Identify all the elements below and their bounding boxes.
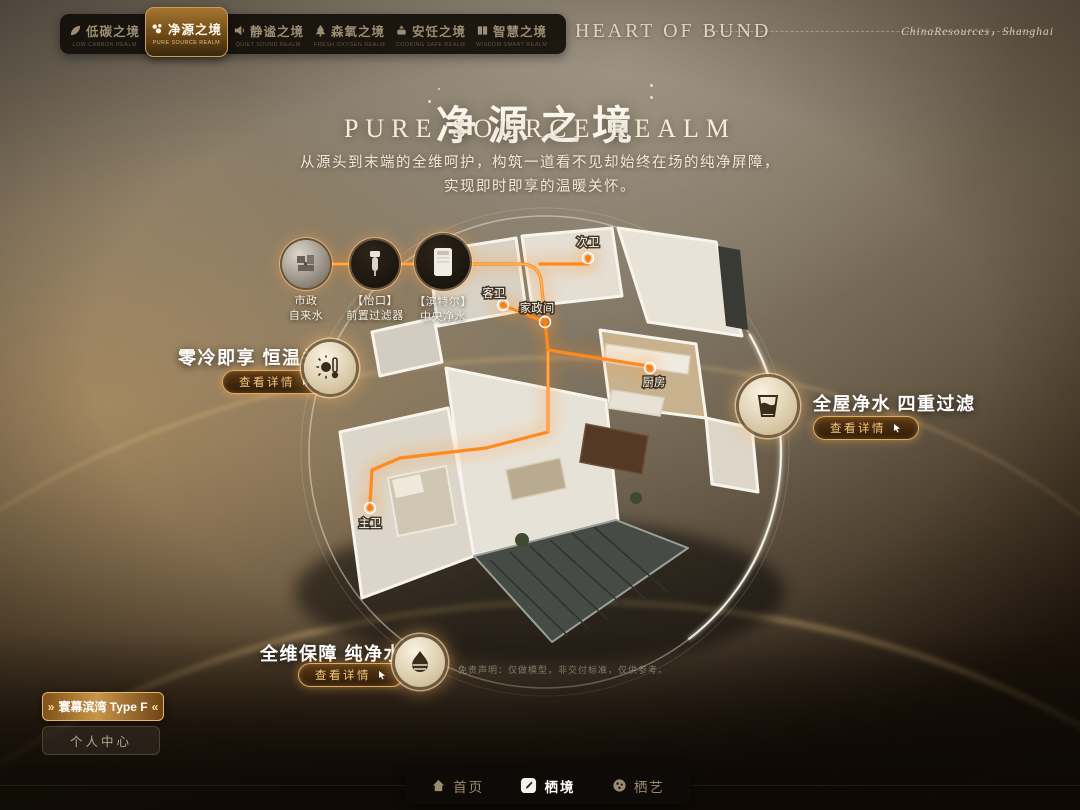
- personal-center-button[interactable]: 个人中心: [42, 726, 160, 755]
- page-subtitle: PURE SOURCE REALM: [0, 114, 1080, 144]
- tab-sublabel: LOW CARBON REALM: [72, 42, 136, 47]
- app-screen: 次卫 客卫 家政间 厨房 主卫 低碳之境 LOW CARBON REALM 净源…: [0, 0, 1080, 810]
- tab-safe-cooking[interactable]: 安饪之境 COOKING SAFE REALM: [390, 14, 471, 54]
- tab-forest-oxygen[interactable]: 森氧之境 FRESH OXYGEN REALM: [309, 14, 390, 54]
- central-purifier-icon: [416, 235, 470, 289]
- callout-right-title: 全屋净水 四重过滤: [813, 390, 976, 416]
- tab-label: 安饪之境: [412, 21, 466, 40]
- cursor-icon: [892, 423, 902, 433]
- water-filter-hotspot-icon[interactable]: [739, 377, 797, 435]
- tab-label: 低碳之境: [86, 21, 140, 40]
- chain-label-line1: 【滨特尔】: [414, 296, 472, 308]
- chain-label-line1: 【怡口】: [352, 295, 398, 307]
- tab-sublabel: COOKING SAFE REALM: [396, 42, 465, 47]
- top-navigation: 低碳之境 LOW CARBON REALM 净源之境 PURE SOURCE R…: [60, 14, 566, 54]
- tab-sublabel: QUIET SOUND REALM: [236, 42, 301, 47]
- tab-label: 静谧之境: [250, 21, 304, 40]
- leaf-icon: [69, 24, 82, 37]
- tab-pure-source[interactable]: 净源之境 PURE SOURCE REALM: [145, 7, 228, 57]
- title-deco-dot: [650, 96, 653, 99]
- page-description-line1: 从源头到末端的全维呵护，构筑一道看不见却始终在场的纯净屏障，: [0, 151, 1080, 172]
- personal-center-label: 个人中心: [70, 731, 132, 750]
- pot-icon: [395, 24, 408, 37]
- tab-sublabel: FRESH OXYGEN REALM: [314, 42, 385, 47]
- tab-low-carbon[interactable]: 低碳之境 LOW CARBON REALM: [64, 14, 145, 54]
- bottomnav-label: 首页: [453, 776, 484, 796]
- chain-label-line2: 中央净水: [420, 311, 466, 323]
- prefilter-icon: [351, 240, 399, 288]
- title-deco-dot: [650, 84, 653, 87]
- chevron-right-icon: »: [48, 700, 55, 714]
- book-icon: [476, 24, 489, 37]
- tab-label: 智慧之境: [493, 21, 547, 40]
- detail-button-label: 查看详情: [315, 667, 371, 683]
- project-type-button[interactable]: » 寰幕滨湾 Type F «: [42, 692, 164, 721]
- brand-location: ChinaResources，Shanghai: [901, 23, 1054, 39]
- project-type-label: 寰幕滨湾 Type F: [58, 698, 147, 715]
- title-deco-dot: [428, 100, 431, 103]
- page-description-line2: 实现即时即享的温暖关怀。: [0, 175, 1080, 196]
- bottomnav-label: 栖境: [544, 776, 575, 796]
- callout-bottom-detail-button[interactable]: 查看详情: [298, 663, 404, 687]
- tab-sublabel: PURE SOURCE REALM: [153, 40, 220, 45]
- tab-sublabel: WISDOM SMART REALM: [476, 42, 547, 47]
- detail-button-label: 查看详情: [830, 420, 886, 436]
- bottomnav-art[interactable]: 栖艺: [612, 776, 665, 796]
- palette-icon: [612, 778, 627, 793]
- bottomnav-label: 栖艺: [634, 776, 665, 796]
- chain-label-line2: 自来水: [289, 310, 324, 322]
- water-quality-hotspot-icon[interactable]: [395, 637, 445, 687]
- tab-quiet[interactable]: 静谧之境 QUIET SOUND REALM: [228, 14, 309, 54]
- chevron-left-icon: «: [152, 700, 159, 714]
- compass-pen-icon: [520, 777, 537, 794]
- home-icon: [431, 778, 446, 793]
- callout-right-detail-button[interactable]: 查看详情: [813, 416, 919, 440]
- speaker-icon: [233, 24, 246, 37]
- title-deco-dot: [438, 88, 440, 90]
- tab-label: 净源之境: [168, 19, 222, 38]
- disclaimer-text: 免责声明：仅做模型，非交付标准，仅供参考。: [458, 663, 668, 676]
- bottomnav-habitat[interactable]: 栖境: [520, 776, 575, 796]
- bottom-navigation: 首页 栖境 栖艺: [405, 767, 691, 804]
- bottomnav-home[interactable]: 首页: [431, 776, 484, 796]
- water-drops-icon: [151, 22, 164, 35]
- municipal-water-icon: [282, 240, 330, 288]
- chain-item-central-purifier: 【滨特尔】中央净水: [395, 235, 491, 326]
- tree-icon: [314, 24, 327, 37]
- tab-label: 森氧之境: [331, 21, 385, 40]
- cursor-icon: [377, 670, 387, 680]
- tab-wisdom[interactable]: 智慧之境 WISDOM SMART REALM: [471, 14, 552, 54]
- chain-label-line1: 市政: [295, 295, 318, 307]
- thermostat-hotspot-icon[interactable]: [304, 342, 356, 394]
- detail-button-label: 查看详情: [239, 374, 295, 390]
